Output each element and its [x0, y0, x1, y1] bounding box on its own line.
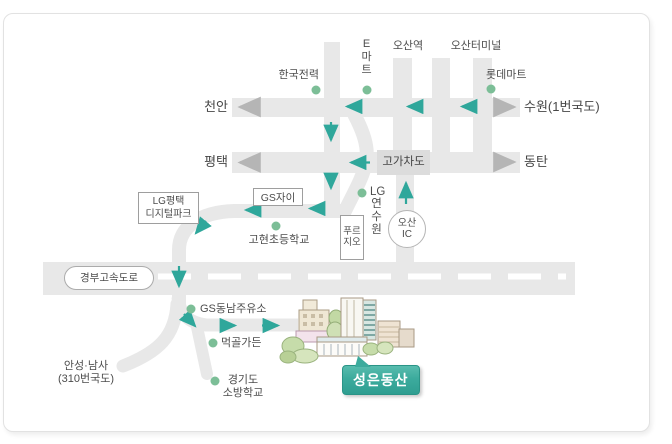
gs-xi-box: GS자이: [253, 188, 303, 206]
map-stage: 한국전력 E마트 오산역 오산터미널 롯데마트 천안 수원(1번국도) 평택 동…: [0, 0, 672, 444]
lg-digital-park-line1: LG평택: [153, 195, 185, 208]
bush-5: [377, 342, 393, 354]
label-lotte-mart: 롯데마트: [486, 69, 526, 82]
label-lg-training: 연수원: [369, 198, 384, 237]
road-pyeongtaek-dongtan: [232, 152, 520, 173]
poi-dot-emart: [363, 86, 372, 95]
label-gs-gas: GS동남주유소: [200, 303, 267, 316]
label-kepco: 한국전력: [269, 69, 319, 82]
label-fire-school: 경기도 소방학교: [208, 374, 278, 400]
building-far-right: [399, 329, 414, 347]
poi-dot-kepco: [312, 86, 321, 95]
anseong-line1: 안성·남사: [38, 360, 134, 373]
label-emart: E마트: [359, 38, 374, 77]
poi-dot-gohyeon-school: [272, 222, 281, 231]
label-anseong: 안성·남사 (310번국도): [38, 360, 134, 386]
poi-dot-lg-training: [358, 189, 367, 198]
road-gsxi-descent: [179, 211, 350, 312]
prugio-box: 푸르지오: [340, 215, 364, 260]
road-to-anseong: [123, 304, 177, 366]
bush-3: [280, 351, 296, 363]
label-suwon: 수원(1번국도): [524, 100, 600, 114]
lg-digital-park-box: LG평택 디지털파크: [138, 192, 199, 224]
poi-dot-gs-gas: [187, 305, 196, 314]
label-osan-terminal: 오산터미널: [441, 40, 511, 53]
label-gohyeon-school: 고현초등학교: [234, 234, 324, 247]
fire-school-line1: 경기도: [208, 374, 278, 387]
osan-ic-line2: IC: [402, 229, 412, 240]
tower-front: [341, 298, 363, 340]
poi-dot-lotte-mart: [487, 85, 496, 94]
poi-dot-meokgol: [209, 339, 218, 348]
road-to-fire-school: [197, 327, 207, 374]
expressway-pill: 경부고속도로: [64, 266, 154, 290]
label-osan-station: 오산역: [381, 40, 435, 53]
seongeun-dongsan-illustration: [280, 298, 414, 363]
label-dongtan: 동탄: [524, 155, 548, 169]
overpass-box: 고가차도: [377, 150, 430, 175]
osan-ic-line1: 오산: [398, 218, 416, 229]
label-cheonan: 천안: [194, 100, 228, 114]
label-meokgol: 먹골가든: [221, 337, 261, 350]
anseong-line2: (310번국도): [38, 373, 134, 386]
label-pyeongtaek: 평택: [194, 155, 228, 169]
destination-badge: 성은동산: [342, 365, 420, 395]
fire-school-line2: 소방학교: [208, 387, 278, 400]
lg-digital-park-line2: 디지털파크: [146, 208, 192, 221]
osan-ic-circle: 오산 IC: [388, 210, 426, 248]
